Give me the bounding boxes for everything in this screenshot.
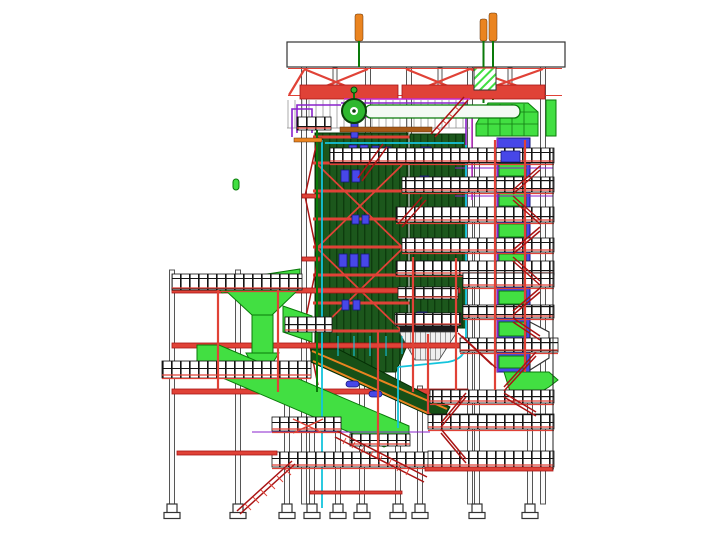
roof-assembly: Roof girder Safety valve silencer stacks… [287,13,565,103]
steam-header [365,105,520,118]
roof-girder [287,42,565,67]
drawing-canvas: Structural support columns Structural su… [0,0,720,540]
column-footings: Column base footings [164,504,538,519]
hatched-plenum-box [474,68,496,90]
plate-girder-left [300,85,398,99]
boiler-elevation-drawing: Structural support columns Structural su… [0,0,720,540]
valve-capsule [233,179,239,190]
